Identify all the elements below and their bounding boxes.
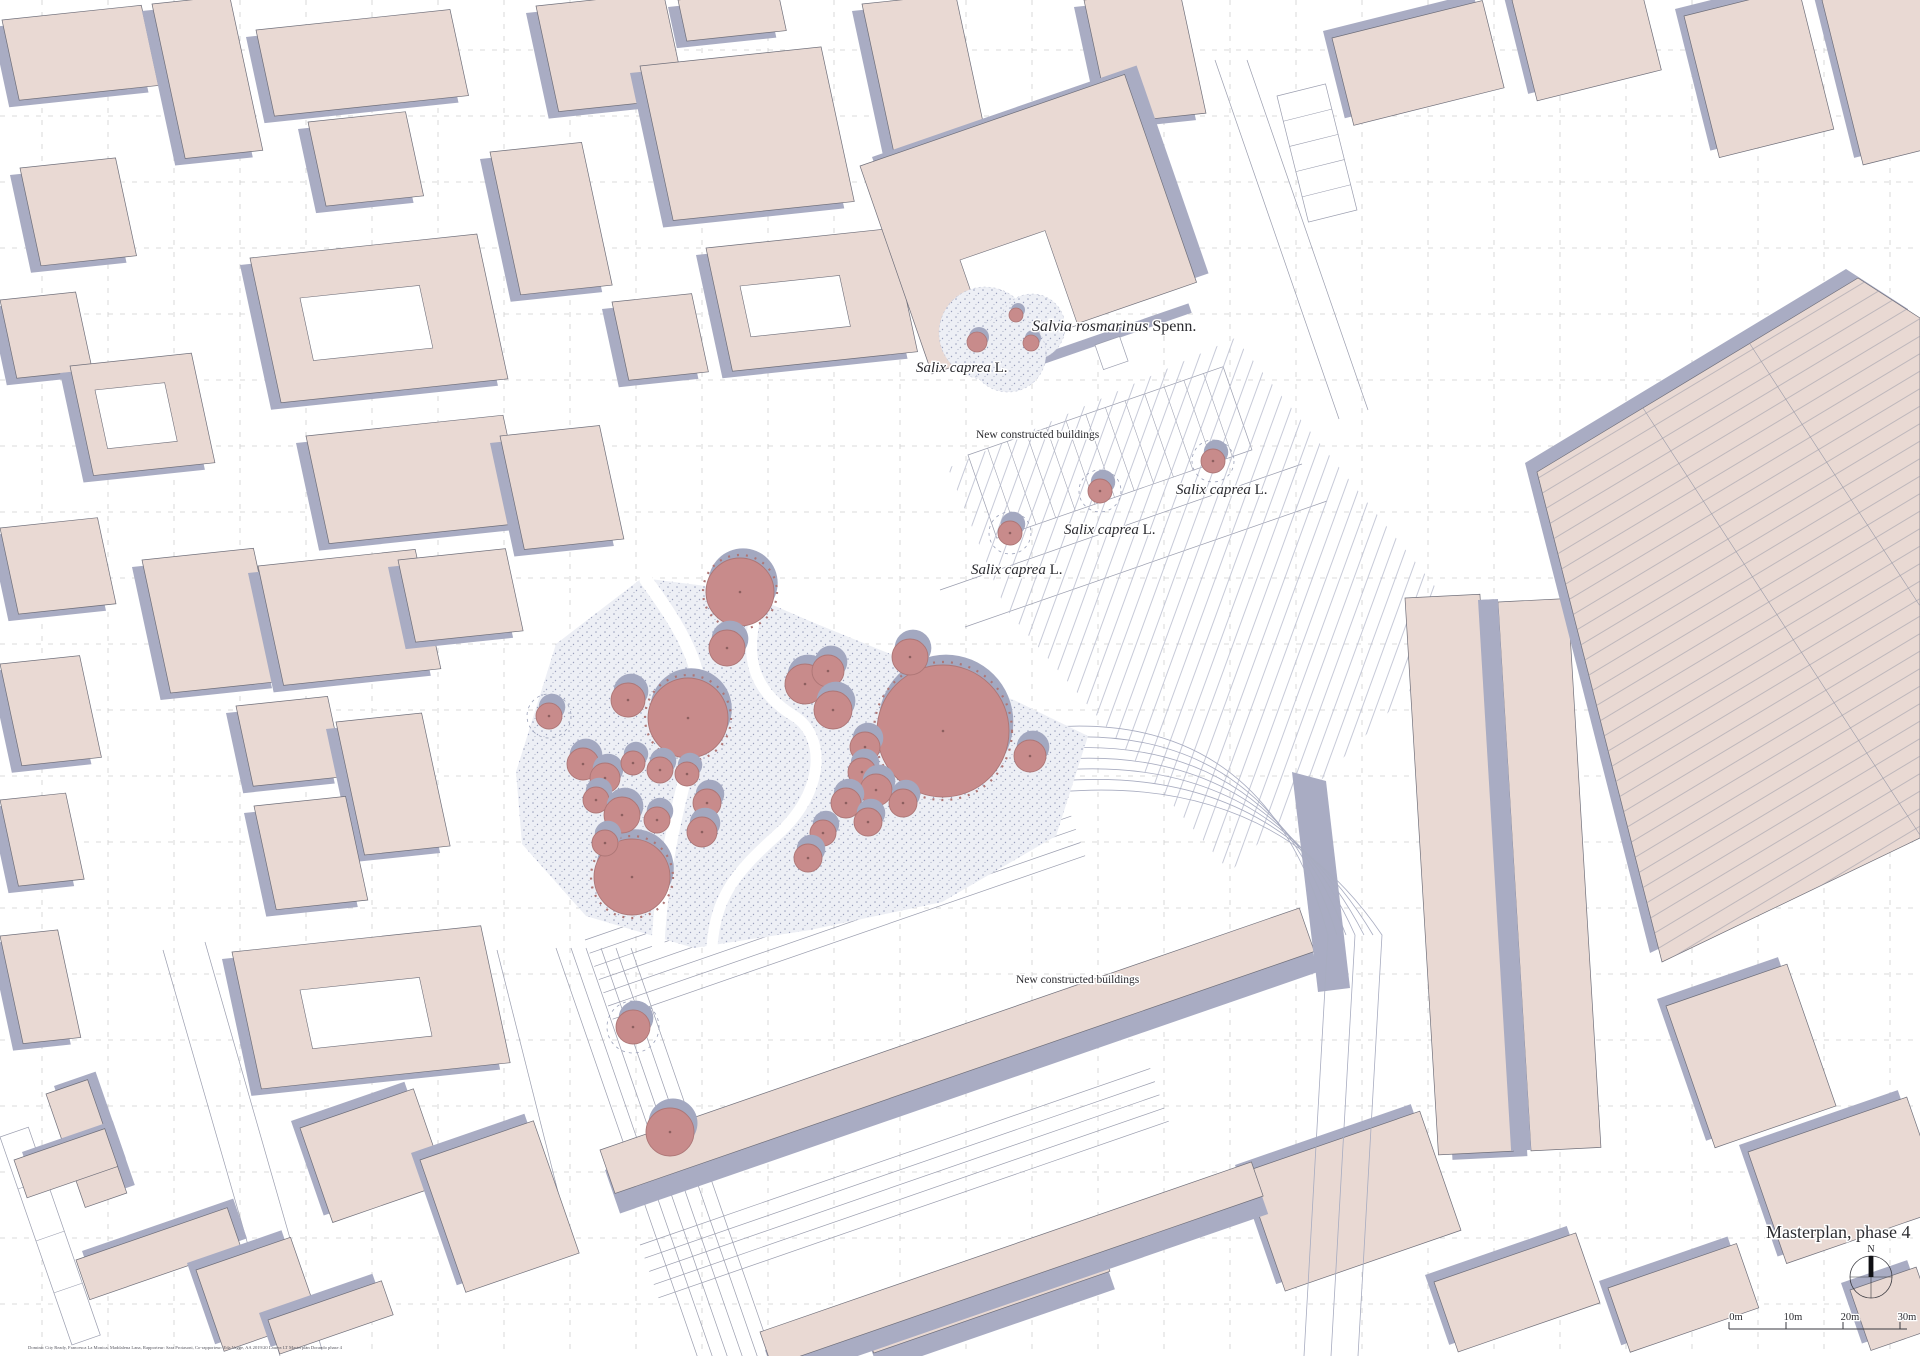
sheet-title: Masterplan, phase 4: [1766, 1222, 1910, 1242]
masterplan-sheet: Salvia rosmarinus Spenn. Salix caprea L.…: [0, 0, 1920, 1356]
label-salix-caprea-mid: Salix caprea L.: [1064, 522, 1156, 538]
label-salix-caprea-left: Salix caprea L.: [971, 562, 1063, 578]
label-new-buildings-top: New constructed buildings: [976, 429, 1100, 441]
sheet-credits: Dominic City Ready, Francesca La Monica,…: [28, 1345, 343, 1351]
label-salvia-rosmarinus: Salvia rosmarinus Spenn.: [1032, 318, 1196, 335]
label-salix-caprea-right: Salix caprea L.: [1176, 482, 1268, 498]
masterplan-canvas: Salvia rosmarinus Spenn. Salix caprea L.…: [0, 0, 1920, 1356]
scale-label-20m: 20m: [1841, 1312, 1860, 1323]
large-roof-building: [1525, 269, 1920, 962]
scale-label-0m: 0m: [1729, 1312, 1742, 1323]
label-salix-caprea-top: Salix caprea L.: [916, 360, 1008, 376]
label-new-buildings-bottom: New constructed buildings: [1016, 974, 1140, 986]
svg-text:N: N: [1867, 1244, 1874, 1255]
scale-label-30m: 30m: [1898, 1312, 1917, 1323]
scale-label-10m: 10m: [1784, 1312, 1803, 1323]
